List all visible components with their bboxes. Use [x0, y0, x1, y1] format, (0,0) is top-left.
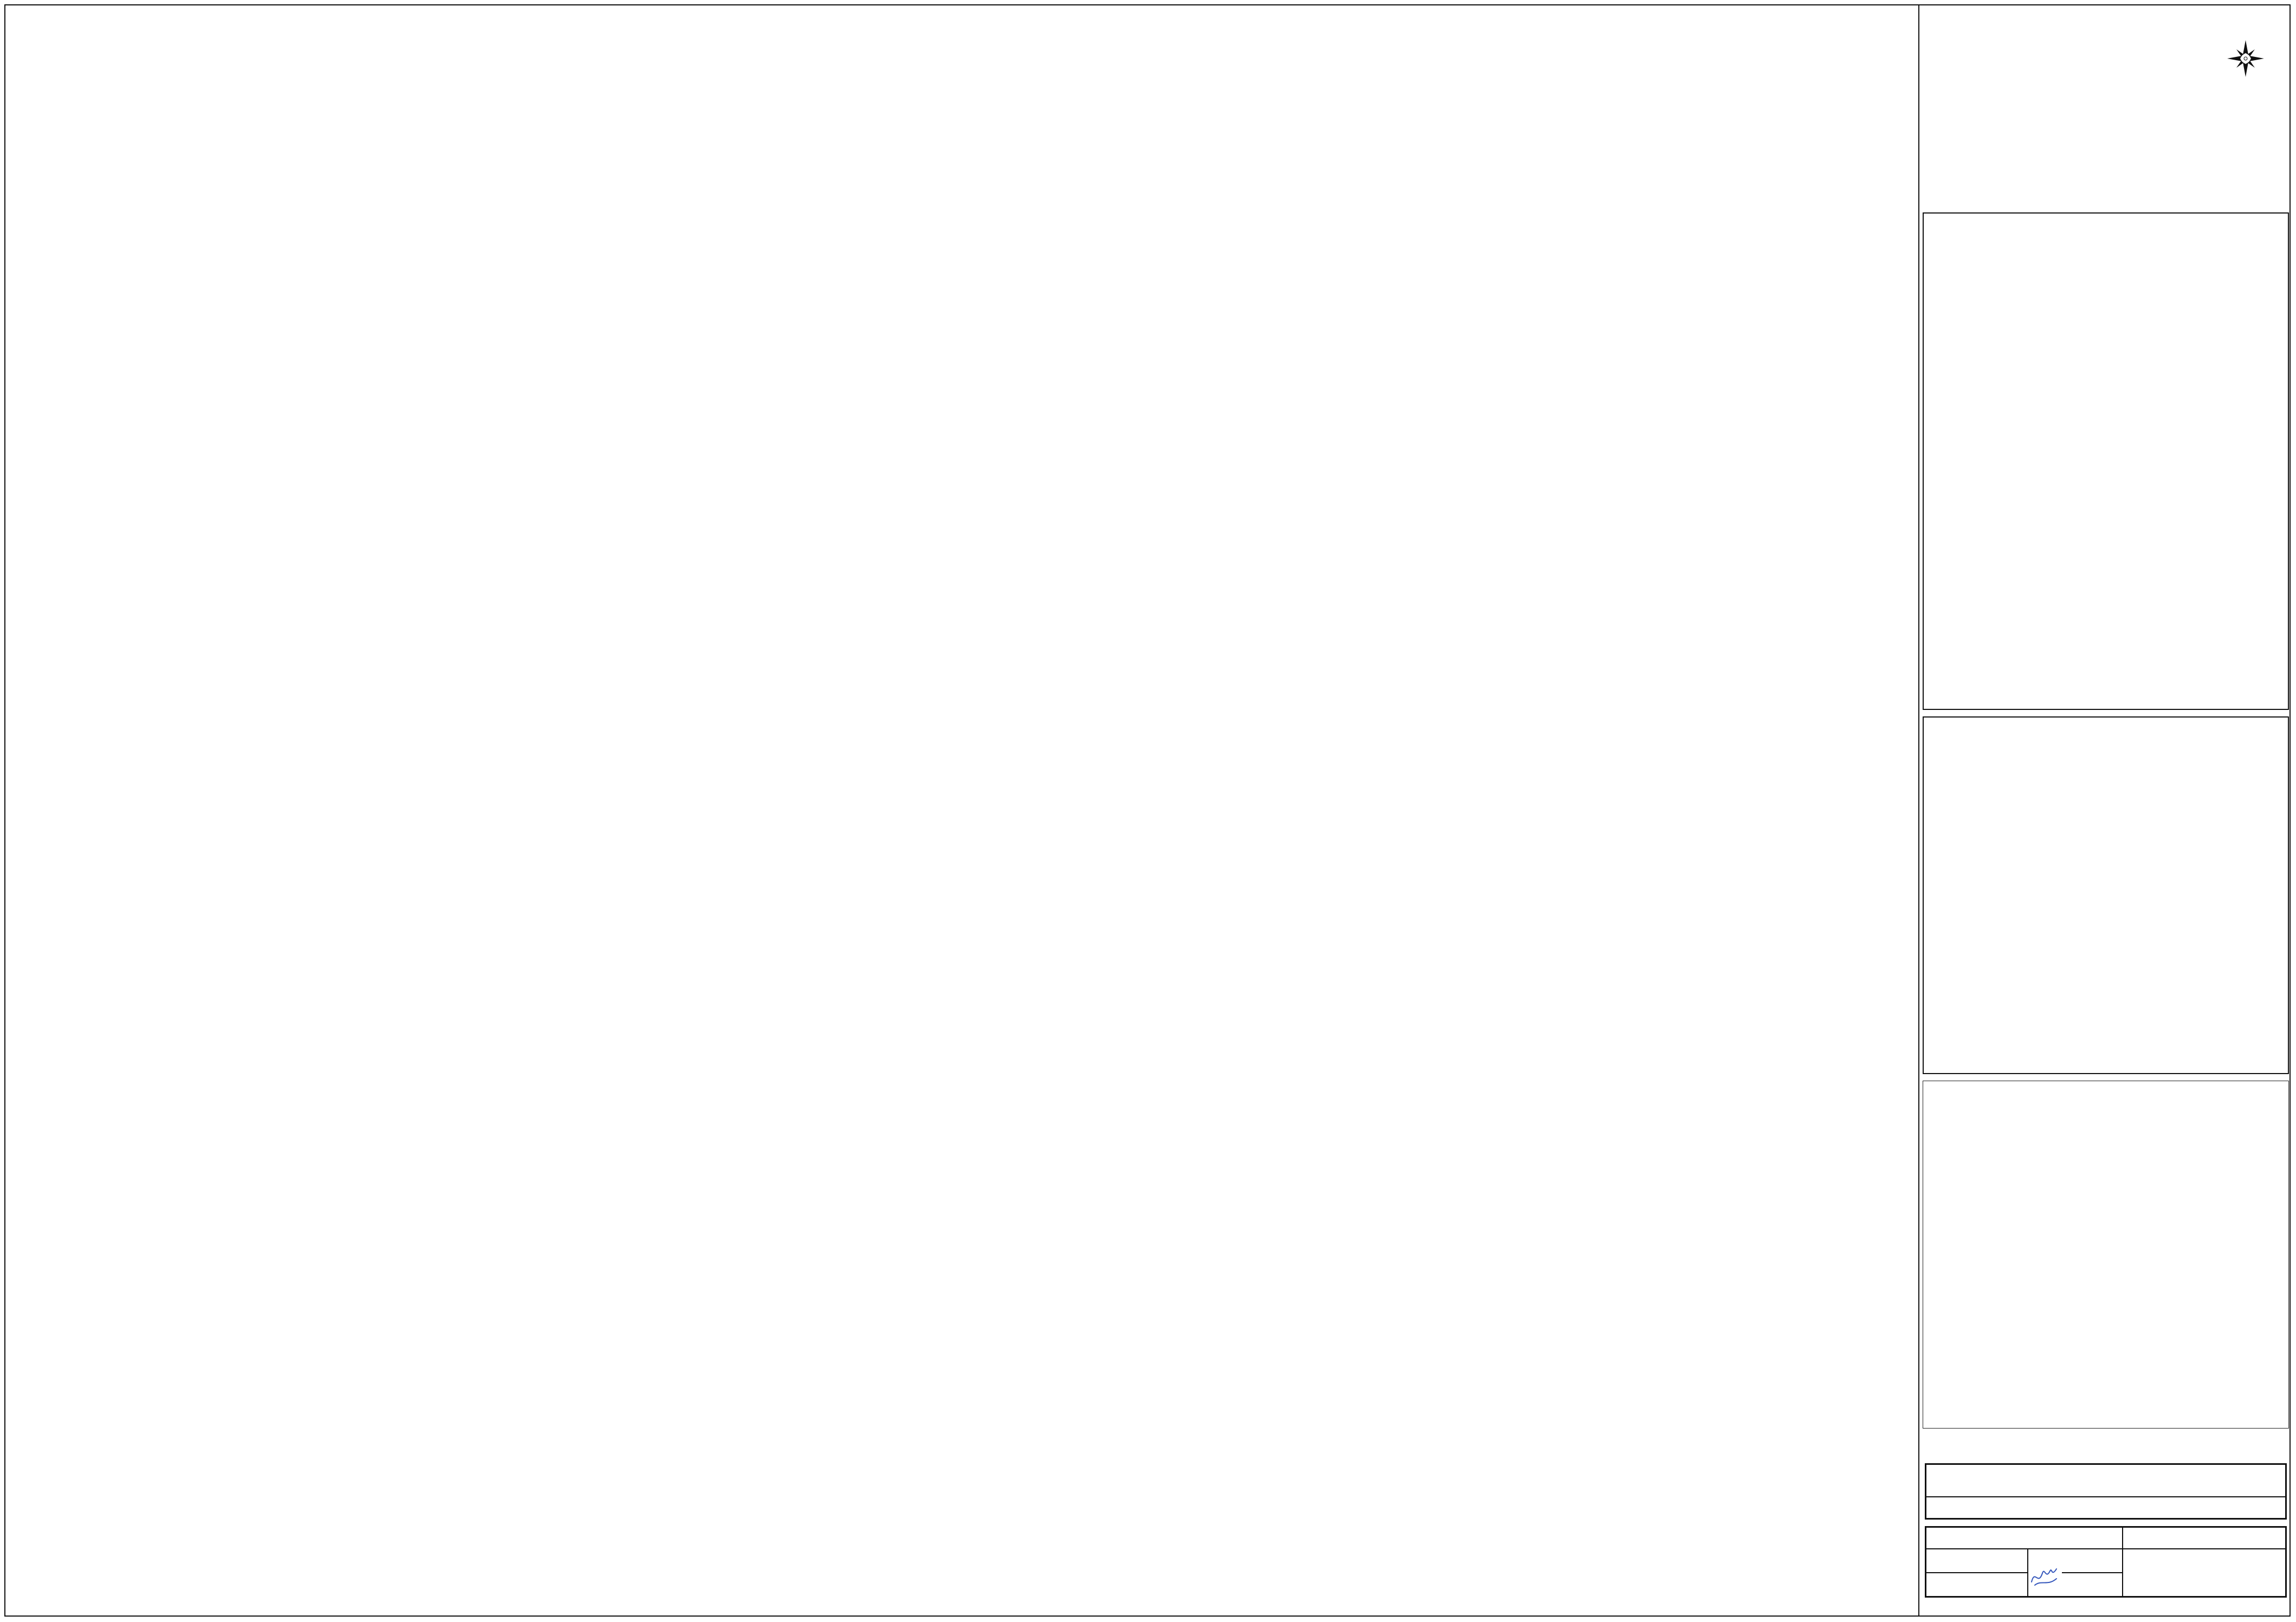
plan-sheet [0, 0, 2296, 1622]
